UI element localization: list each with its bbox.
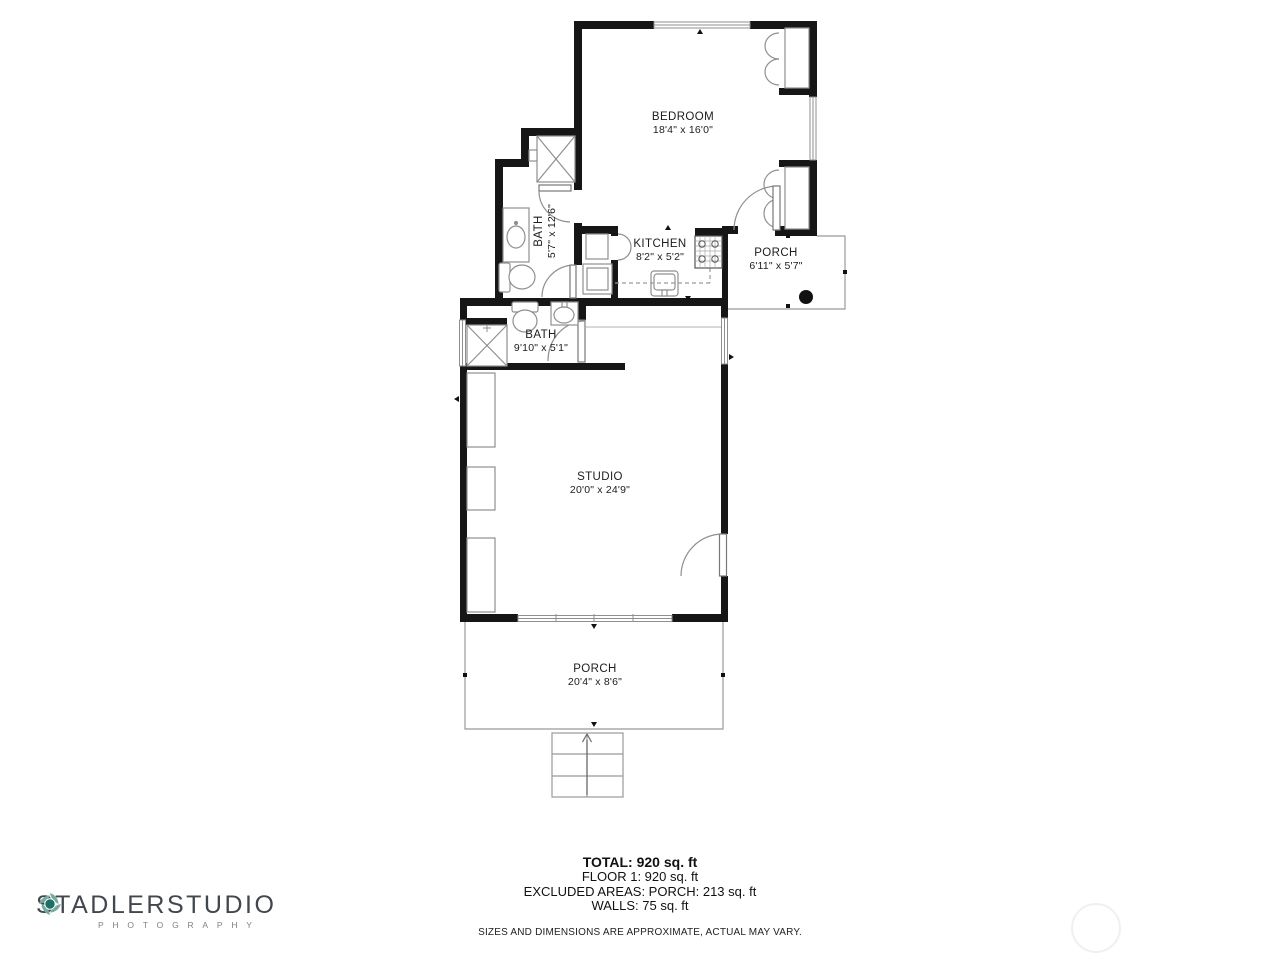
bath-lower-name: BATH	[514, 329, 568, 342]
watermark-circle	[1071, 903, 1121, 953]
studio-name: STUDIO	[570, 471, 630, 484]
bath-upper-dims: 5'7" x 12'6"	[546, 204, 559, 258]
kitchen-label: KITCHEN 8'2" x 5'2"	[633, 238, 686, 264]
bath-upper-name: BATH	[533, 204, 546, 258]
bath-lower-label: BATH 9'10" x 5'1"	[514, 329, 568, 355]
camera-shutter-icon	[38, 892, 62, 916]
porch-front-name: PORCH	[568, 663, 622, 676]
studio-cabinets	[467, 373, 495, 612]
summary-excluded: EXCLUDED AREAS: PORCH: 213 sq. ft	[478, 885, 802, 900]
logo-word2: STUDIO	[167, 892, 276, 918]
summary-walls: WALLS: 75 sq. ft	[478, 899, 802, 914]
bath-upper-label: BATH 5'7" x 12'6"	[533, 204, 559, 258]
kitchen-name: KITCHEN	[633, 238, 686, 251]
closet-interiors	[785, 28, 809, 229]
summary-floor1: FLOOR 1: 920 sq. ft	[478, 870, 802, 885]
porch-side-dims: 6'11" x 5'7"	[749, 260, 802, 273]
studio-label: STUDIO 20'0" x 24'9"	[570, 471, 630, 497]
porch-front-dims: 20'4" x 8'6"	[568, 676, 622, 689]
porch-side-label: PORCH 6'11" x 5'7"	[749, 247, 802, 273]
floorplan-drawing	[0, 0, 1280, 960]
porch-front-label: PORCH 20'4" x 8'6"	[568, 663, 622, 689]
stairs	[552, 733, 623, 797]
logo-subtitle: PHOTOGRAPHY	[36, 920, 276, 930]
area-summary: TOTAL: 920 sq. ft FLOOR 1: 920 sq. ft EX…	[478, 855, 802, 938]
summary-total: TOTAL: 920 sq. ft	[478, 855, 802, 870]
porch-post	[799, 290, 813, 304]
stove	[695, 236, 722, 268]
bedroom-name: BEDROOM	[652, 111, 714, 124]
bedroom-dims: 18'4" x 16'0"	[652, 124, 714, 137]
kitchen-dims: 8'2" x 5'2"	[633, 251, 686, 264]
porch-side-name: PORCH	[749, 247, 802, 260]
bedroom-label: BEDROOM 18'4" x 16'0"	[652, 111, 714, 137]
floorplan-page: BEDROOM 18'4" x 16'0" BATH 5'7" x 12'6" …	[0, 0, 1280, 960]
bath-lower-dims: 9'10" x 5'1"	[514, 342, 568, 355]
dimension-ticks	[454, 29, 847, 727]
summary-disclaimer: SIZES AND DIMENSIONS ARE APPROXIMATE, AC…	[478, 927, 802, 938]
studio-dims: 20'0" x 24'9"	[570, 484, 630, 497]
logo-wordmark: STADLER STUDIO	[36, 892, 276, 918]
stadler-studio-logo: STADLER STUDIO PHOTOGRAPHY	[36, 892, 276, 930]
